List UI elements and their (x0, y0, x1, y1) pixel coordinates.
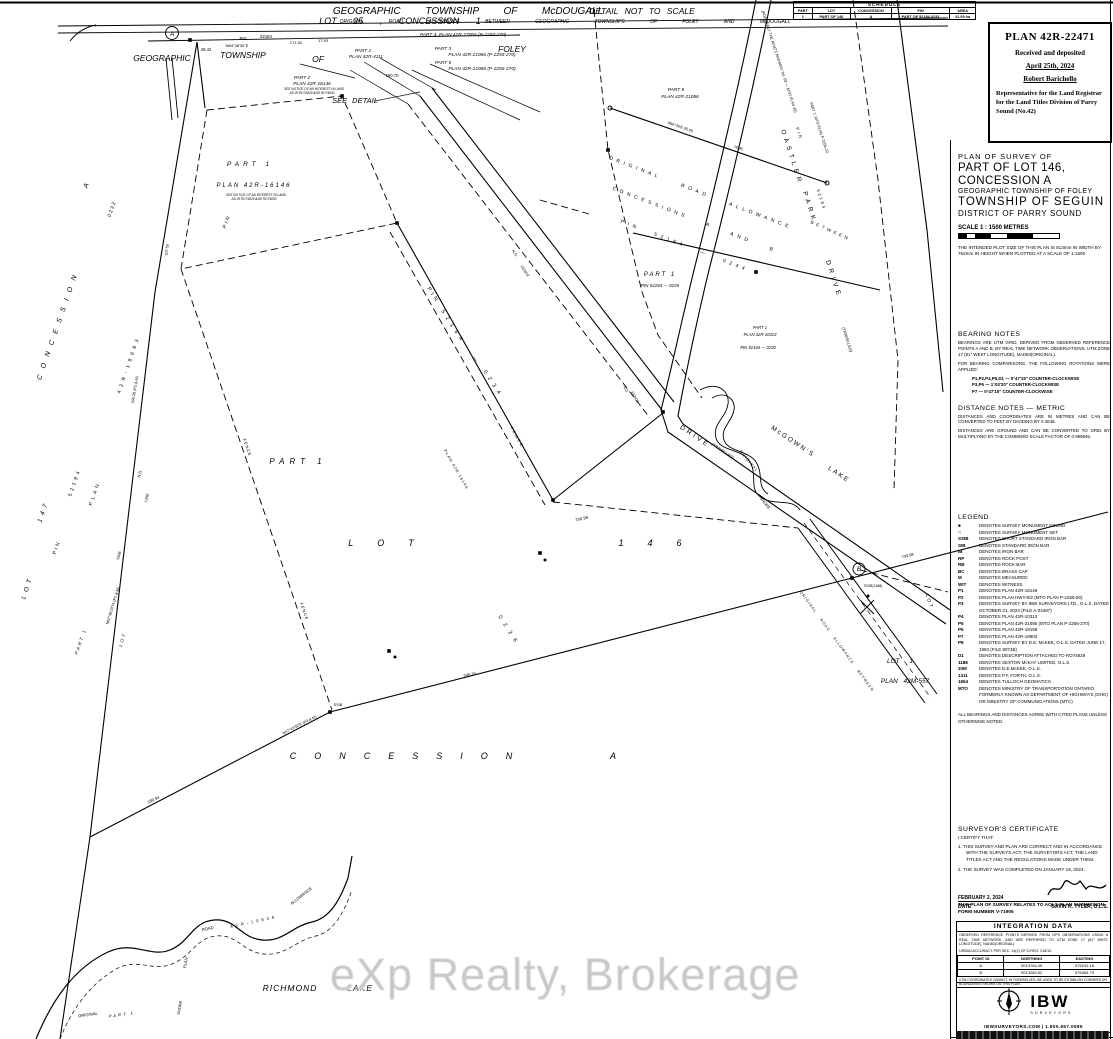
map-label: N.D. (511, 249, 519, 258)
compass-icon (994, 986, 1024, 1021)
map-label: PLAN 42R-21086 (P-2255-270) (448, 52, 516, 58)
map-label: DRIVE (678, 424, 711, 449)
map-label: PART 1, MTO PLAN P-2255-22 (809, 102, 829, 154)
table-row: B5013260.92576384.79 (958, 969, 1110, 976)
map-label: PART 1 (108, 1010, 135, 1019)
map-label: PART 1 (753, 325, 767, 330)
map-label: PART 4, PLAN 42R-27066 (P-2255-270) (420, 32, 507, 38)
map-label: ALLOWANCE (289, 886, 313, 906)
map-label: 700.98 (575, 514, 589, 522)
map-label: PART 1 (355, 48, 372, 54)
frame-lines (0, 0, 1113, 1039)
map-label: 733.98 (901, 551, 915, 559)
map-label: CONCESSIONS A AND B (611, 186, 777, 255)
map-label: PART 1 (227, 161, 273, 168)
map-label: ORIGINAL (78, 1011, 99, 1019)
map-label: 107.50 (164, 244, 170, 256)
distance-notes-p2: DISTANCES ARE GROUND AND CAN BE CONVERTE… (958, 428, 1110, 440)
rotation-2: P3,P6 — 1°03'20" COUNTER-CLOCKWISE (972, 382, 1110, 389)
stamp-registrar-name: Robert Barichello (990, 75, 1110, 83)
aols-note: THIS PLAN OF SURVEY RELATES TO AOLS PLAN… (958, 903, 1108, 916)
legend: LEGEND ■DENOTES SURVEY MONUMENT FOUND□DE… (958, 514, 1112, 725)
map-label: PIN 52184 — 0230 (740, 345, 776, 350)
map-label: 52184 (260, 34, 272, 39)
certificate-intro: I CERTIFY THAT: (958, 835, 1108, 841)
table-header: POINT ID (958, 955, 1004, 962)
map-label: DETAIL NOT TO SCALE (589, 6, 695, 16)
survey-plan-sheet: GEOGRAPHIC TOWNSHIP OF McDOUGALLLOT 25 ,… (0, 0, 1113, 1039)
legend-entry: P3 (958, 601, 979, 614)
map-label: A (609, 751, 616, 761)
map-label: (TRAVELLED) (711, 441, 736, 460)
map-label: SHORE (176, 1000, 183, 1015)
map-label: OF (312, 54, 325, 64)
integration-table: POINT IDNORTHINGEASTING A5013764.4557523… (957, 955, 1110, 977)
legend-entry: MTO (958, 686, 979, 706)
plan-number: PLAN 42R-22471 (990, 31, 1110, 43)
map-label: 0236 (496, 615, 521, 649)
map-label: N62°38'10"W (P2 & M) (105, 586, 120, 625)
map-label: FENCE (519, 265, 530, 278)
map-label: PIN (222, 214, 233, 230)
map-label: PLAN 42R-16146 (216, 183, 291, 189)
title-line: PLAN OF SURVEY OF (958, 153, 1108, 162)
map-label: 52184 (68, 468, 83, 497)
map-label: PLAN (182, 957, 189, 969)
map-label: PIN 52184 — 0244 (620, 219, 750, 274)
stamp-received: Received and deposited (990, 49, 1110, 57)
map-label: AS IN RO74829 AND RO74830 (231, 197, 277, 201)
legend-entry: P8 (958, 640, 979, 653)
map-label: PART 1 (644, 272, 676, 278)
map-label: LOT (20, 575, 35, 601)
signature-row: FEBRUARY 2, 2024 (958, 879, 1108, 902)
map-label: PLAN 42R-10313 (744, 332, 777, 337)
stamp-date: April 25th, 2024 (990, 62, 1110, 70)
map-label: 147 (37, 500, 51, 524)
map-label: PLAN 42R-21086 (661, 94, 699, 100)
map-label: PART 2 (294, 75, 311, 81)
map-label: RICHMOND (263, 983, 318, 993)
map-label: 52184 (816, 188, 827, 210)
map-label: ORIGINAL ROAD ALLOWANCE BETWEEN GEOGRAPH… (340, 19, 791, 25)
logo-subtitle: SURVEYORS (1030, 1011, 1072, 1015)
map-label: FENCE (509, 426, 525, 449)
reference-point-circles (166, 27, 866, 576)
map-label: 295.15 (463, 670, 477, 678)
map-label: PLAN 42R-16146 (443, 448, 470, 490)
surveyors-certificate: SURVEYOR'S CERTIFICATE I CERTIFY THAT: 1… (958, 826, 1108, 910)
map-labels: GEOGRAPHIC TOWNSHIP OF McDOUGALLLOT 25 ,… (20, 6, 934, 1019)
map-label: PLAN 42M-557 (881, 678, 930, 685)
map-label: SSIB(1188) (864, 584, 882, 588)
table-row: 1PART OF 146APART OF 52184-023322.09 ha (794, 14, 976, 20)
map-label: PLAN (88, 481, 102, 507)
map-label: 0 2 3 2 (107, 201, 118, 218)
map-label: LOT (348, 538, 438, 548)
bearing-notes-p1: BEARINGS ARE UTM GRID, DERIVED FROM OBSE… (958, 340, 1110, 358)
project-info-bar (956, 1031, 1109, 1039)
bearing-notes: BEARING NOTES BEARINGS ARE UTM GRID, DER… (958, 331, 1110, 443)
map-label: PART 1 (269, 457, 326, 466)
map-label: 171.52 (290, 40, 303, 45)
map-label: 52184 (439, 309, 466, 346)
map-label: 0234 (482, 369, 505, 399)
map-label: FENCE (242, 438, 253, 457)
legend-rows: ■DENOTES SURVEY MONUMENT FOUND□DENOTES S… (958, 523, 1112, 705)
map-label: A (169, 31, 174, 38)
signature-icon (1046, 877, 1108, 906)
map-label: SEE DETAIL (332, 96, 378, 105)
table-row: A5013764.45575231.18 (958, 962, 1110, 969)
map-label: A (82, 182, 91, 190)
map-label: SHORE (759, 496, 772, 510)
map-label: PART 1 (74, 628, 88, 655)
map-label: 190.70 (386, 73, 399, 78)
map-label: DRIVE (824, 259, 843, 299)
map-label: BETWEEN (810, 220, 852, 242)
map-label: LOT (118, 632, 128, 648)
map-label: PIN (795, 127, 804, 141)
map-label: 146 (618, 538, 705, 548)
schedule-table: SCHEDULE PARTLOTCONCESSIONPINAREA 1PART … (793, 1, 976, 20)
map-label: SSIB (334, 703, 343, 707)
certificate-item-1: 1. THIS SURVEY AND PLAN ARE CORRECT AND … (966, 844, 1108, 863)
distance-notes-title: DISTANCE NOTES — METRIC (958, 405, 1110, 412)
integration-data: INTEGRATION DATA OBSERVED REFERENCE POIN… (956, 921, 1111, 988)
map-label: FENCE (630, 391, 640, 405)
map-label: ORIGINAL ROAD ALLOWANCE BETWEEN (799, 590, 875, 692)
map-label: LOT (924, 593, 935, 610)
map-label: McGOWN'S (770, 425, 816, 459)
dashed-boundaries (181, 0, 948, 710)
map-label: PART 3 (435, 46, 452, 52)
map-label: 345.28 (P3 & M) (131, 375, 140, 404)
map-label: N84°48'30"E (226, 43, 249, 48)
rotation-1: P1,P2,P4,P5,D1 — 0°47'15" COUNTER-CLOCKW… (972, 376, 1110, 383)
map-label: PIN (52, 540, 62, 556)
map-label: N84°45'E 35.05 (667, 121, 693, 133)
map-label: ROAD (201, 925, 214, 932)
map-label: 42R-10939 (230, 914, 278, 929)
scale-bar (958, 233, 1060, 239)
certificate-item-2: 2. THE SURVEY WAS COMPLETED ON JANUARY 1… (966, 867, 1108, 873)
legend-footer: ALL BEARINGS AND DISTANCES AGREE WITH CI… (958, 712, 1112, 725)
integration-p2: URBAN ACCURACY PER SEC. 14(2) OF O.REG. … (957, 948, 1110, 955)
registrar-stamp: PLAN 42R-22471 Received and deposited Ap… (988, 22, 1112, 143)
ibw-logo-block: IBW SURVEYORS IBWSURVEYORS.COM | 1.800.6… (956, 982, 1111, 1033)
title-concession: CONCESSION A (958, 175, 1108, 188)
map-label: LINE (143, 492, 150, 502)
certificate-title: SURVEYOR'S CERTIFICATE (958, 826, 1108, 833)
map-label: AS IN RO74829 AND RO74830 (289, 91, 335, 95)
logo-name: IBW (1030, 993, 1072, 1010)
legend-title: LEGEND (958, 514, 1112, 521)
legend-entry: DENOTES SURVEY BY D.E. McKEE, O.L.S. DAT… (979, 640, 1112, 653)
schedule-caption: SCHEDULE (793, 1, 976, 7)
rotation-3: P7 — 0°47'15" COUNTER-CLOCKWISE (972, 389, 1110, 396)
map-label: GEOGRAPHIC (133, 53, 191, 63)
road-allowance-southeast (798, 519, 937, 703)
map-label: 17.93 (318, 38, 329, 43)
survey-monuments (188, 38, 869, 714)
bearing-notes-title: BEARING NOTES (958, 331, 1110, 338)
table-header: EASTING (1059, 955, 1109, 962)
map-label: N.D. (136, 469, 143, 478)
legend-entry: DENOTES SURVEY BY IBW SURVEYORS LTD., O.… (979, 601, 1112, 614)
title-geo-township: GEOGRAPHIC TOWNSHIP OF FOLEY (958, 188, 1108, 196)
map-label: B (857, 566, 862, 573)
map-label: PART 8 (668, 87, 685, 93)
map-label: LOT 1 (887, 658, 913, 665)
stamp-registrar-role: Representative for the Land Registrar fo… (996, 90, 1104, 116)
title-block: PLAN OF SURVEY OF PART OF LOT 146, CONCE… (958, 153, 1108, 257)
title-district: DISTRICT OF PARRY SOUND (958, 209, 1108, 218)
map-label: SSIB (116, 551, 122, 561)
map-label: PLAN 42R-4111 (349, 54, 384, 60)
map-label: N47°42'30"E (P3 & M) (282, 714, 318, 735)
survey-drawing: GEOGRAPHIC TOWNSHIP OF McDOUGALLLOT 25 ,… (0, 0, 1113, 1039)
map-label: CONCESSION (36, 268, 81, 381)
oastler-park-drive-road (661, 0, 950, 624)
plot-size-note: THE INTENDED PLOT SIZE OF THIS PLAN IS 8… (958, 245, 1106, 257)
integration-title: INTEGRATION DATA (957, 922, 1110, 932)
map-label: (FORMERLY THE KING'S HIGHWAY No. 69 — MT… (761, 10, 798, 114)
legend-entry: DENOTES MINISTRY OF TRANSPORTATION ONTAR… (979, 686, 1112, 706)
integration-p1: OBSERVED REFERENCE POINTS DERIVED FROM G… (957, 932, 1110, 948)
bearing-notes-p2: FOR BEARING COMPARISONS, THE FOLLOWING R… (958, 361, 1110, 373)
map-label: 42R-18983 (116, 335, 141, 394)
map-label: TOWNSHIP (220, 50, 266, 60)
watermark: eXp Realty, Brokerage (330, 949, 800, 1001)
map-label: (TRAVELLED) (841, 326, 854, 353)
map-label: N.D. (622, 385, 629, 394)
table-header: NORTHING (1004, 955, 1060, 962)
title-lot: PART OF LOT 146, (958, 162, 1108, 175)
map-label: PIN 52184 — 0235 (641, 283, 680, 288)
map-label: PART 5 (435, 60, 452, 66)
map-label: 186.94 (146, 794, 160, 804)
map-label: PLAN 42R-21086 (P-2255-270) (448, 66, 516, 72)
map-label: PIN (240, 36, 247, 41)
distance-notes-p1: DISTANCES AND COORDINATES ARE IN METRES … (958, 414, 1110, 426)
map-label: LAKE (827, 465, 851, 485)
map-label: PARK (801, 191, 818, 225)
scale-label: SCALE 1 : 1500 METRES (958, 225, 1108, 232)
certificate-date: FEBRUARY 2, 2024 (958, 895, 1004, 901)
logo-contact: IBWSURVEYORS.COM | 1.800.667.0695 (984, 1024, 1083, 1029)
map-label: 49.42 (201, 47, 212, 52)
title-township: TOWNSHIP OF SEGUIN (958, 196, 1108, 209)
map-label: CONCESSION (290, 751, 531, 761)
